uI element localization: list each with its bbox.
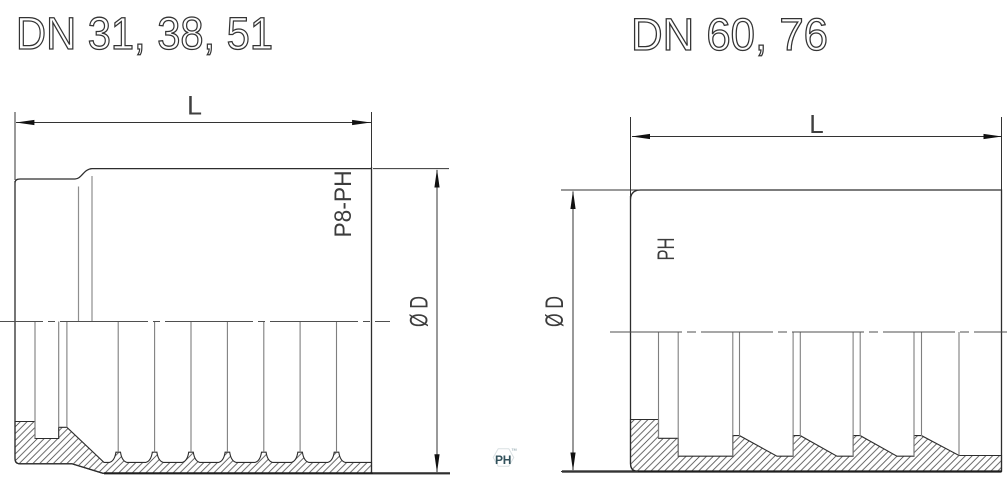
svg-text:P8-PH: P8-PH [330,171,357,238]
svg-text:L: L [187,91,202,121]
svg-text:DN 60, 76: DN 60, 76 [631,9,828,60]
svg-text:L: L [809,109,823,139]
svg-text:Ø D: Ø D [406,296,434,327]
svg-text:DN 31, 38, 51: DN 31, 38, 51 [16,8,273,59]
svg-text:PH: PH [495,453,511,467]
svg-text:Ø D: Ø D [541,296,569,327]
svg-text:PH: PH [653,238,680,261]
svg-text:™: ™ [511,448,517,455]
